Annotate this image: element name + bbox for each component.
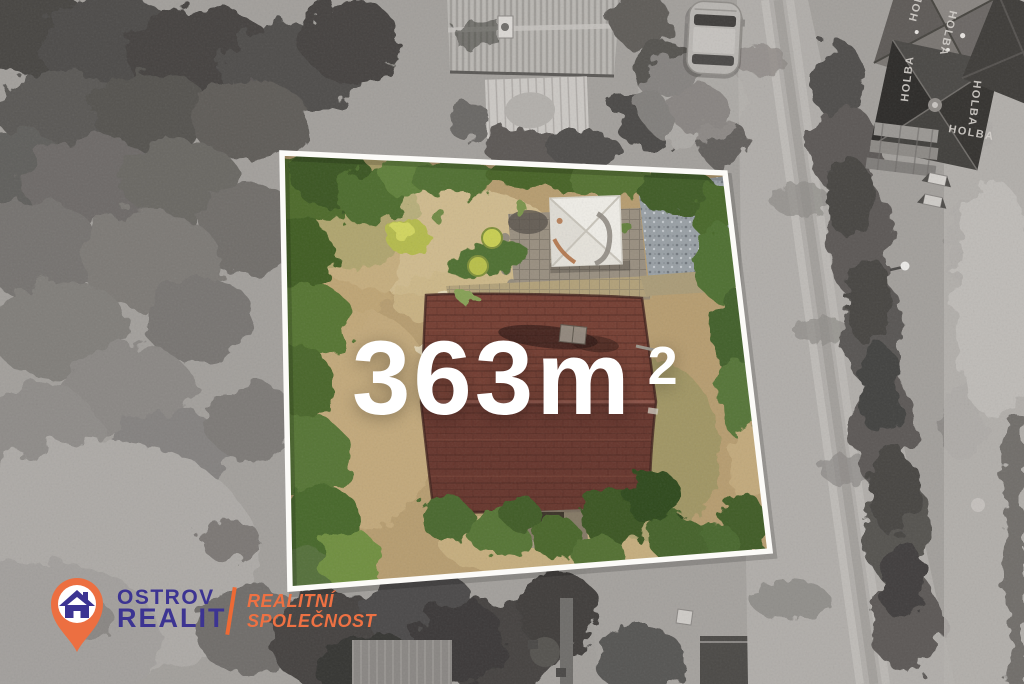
brand-tagline-line2: SPOLEČNOST (247, 611, 376, 632)
brand-logo: OSTROV REALIT REALITNÍ SPOLEČNOST (40, 574, 420, 674)
map-pin-icon (45, 576, 109, 656)
brand-name-line2: REALIT (117, 603, 227, 634)
area-label: 363m2 (352, 326, 678, 431)
area-superscript: 2 (648, 339, 678, 393)
brand-divider (225, 587, 236, 635)
area-value: 363m (352, 320, 633, 437)
aerial-property-photo: HOLBA HOLBA HOLBA HOLBA HOLBA (0, 0, 1024, 684)
brand-tagline-line1: REALITNÍ (247, 591, 334, 612)
